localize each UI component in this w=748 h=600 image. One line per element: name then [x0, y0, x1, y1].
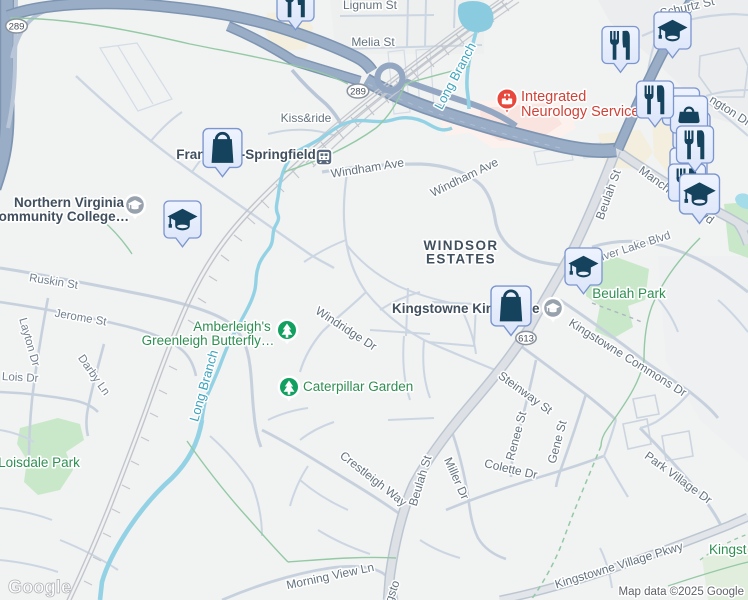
svg-text:Lignum St: Lignum St — [343, 0, 398, 12]
svg-text:Loisdale Park: Loisdale Park — [0, 455, 80, 470]
svg-text:Amberleigh's: Amberleigh's — [193, 319, 271, 334]
svg-text:Greenleigh Butterfly…: Greenleigh Butterfly… — [142, 333, 275, 348]
svg-text:613: 613 — [518, 334, 534, 345]
svg-text:Lois Dr: Lois Dr — [2, 371, 39, 385]
svg-text:e: e — [532, 301, 540, 316]
svg-text:289: 289 — [9, 22, 25, 33]
svg-text:ESTATES: ESTATES — [426, 252, 496, 267]
svg-text:Beulah Park: Beulah Park — [592, 286, 666, 301]
svg-text:Map data ©2025 Google: Map data ©2025 Google — [619, 586, 744, 598]
svg-text:Northern Virginia: Northern Virginia — [14, 195, 125, 210]
svg-text:Caterpillar Garden: Caterpillar Garden — [303, 379, 413, 394]
svg-text:Melia St: Melia St — [351, 35, 395, 49]
svg-text:289: 289 — [350, 87, 366, 98]
svg-text:Kingst: Kingst — [709, 542, 747, 557]
svg-text:Kiss&ride: Kiss&ride — [281, 111, 332, 125]
svg-text:Neurology Service: Neurology Service — [521, 104, 639, 120]
svg-text:Franconia-Springfield: Franconia-Springfield — [176, 147, 316, 162]
svg-text:Google: Google — [8, 577, 71, 597]
svg-text:Integrated: Integrated — [521, 89, 586, 105]
svg-text:Community College…: Community College… — [0, 209, 129, 224]
svg-text:Kingstowne Kind: Kingstowne Kind — [392, 301, 502, 316]
